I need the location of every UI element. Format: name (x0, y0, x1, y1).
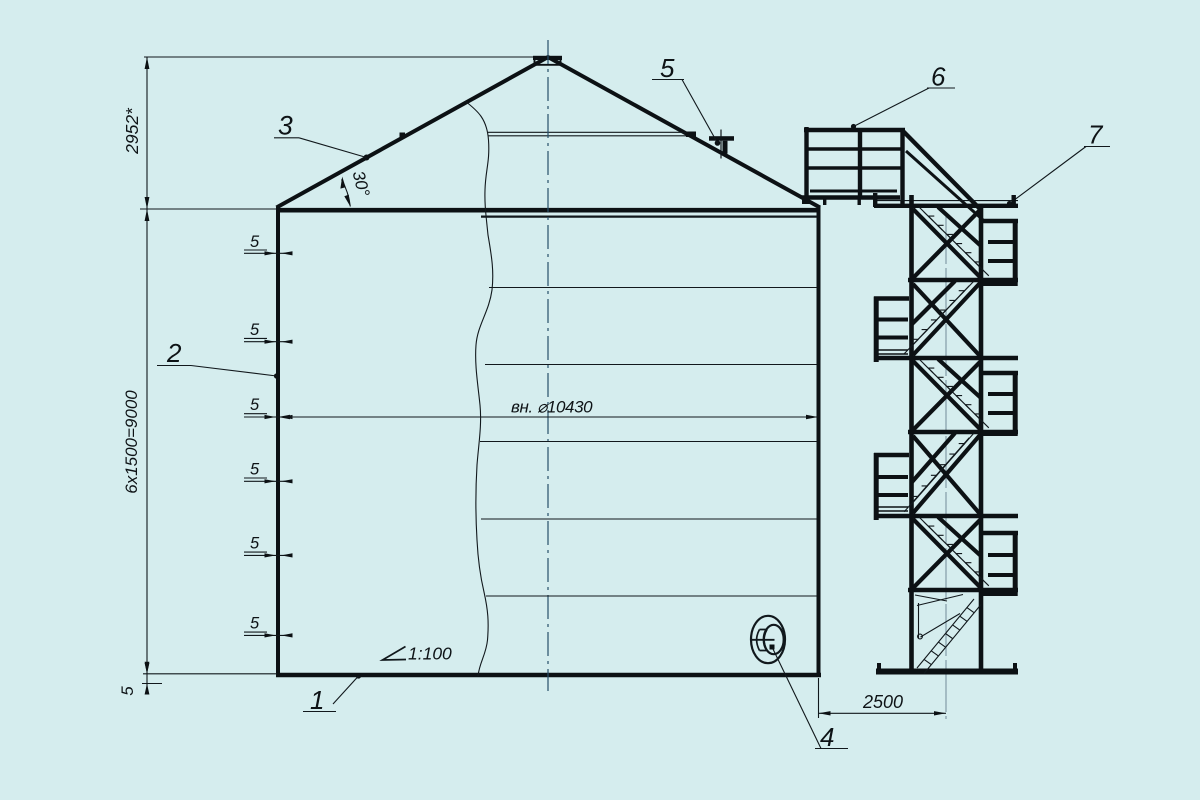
svg-text:2952*: 2952* (122, 107, 142, 155)
svg-text:5: 5 (250, 615, 260, 633)
svg-text:1:100: 1:100 (408, 644, 452, 664)
svg-text:2500: 2500 (862, 692, 903, 712)
svg-text:4: 4 (820, 722, 834, 752)
svg-text:5: 5 (250, 321, 260, 339)
svg-text:6: 6 (931, 62, 946, 92)
svg-text:5: 5 (118, 686, 137, 696)
svg-text:2: 2 (166, 338, 182, 368)
svg-text:вн. ⌀10430: вн. ⌀10430 (511, 398, 593, 417)
svg-text:5: 5 (250, 461, 260, 479)
svg-text:5: 5 (250, 535, 260, 553)
svg-text:7: 7 (1088, 120, 1104, 150)
svg-text:6x1500=9000: 6x1500=9000 (122, 390, 141, 494)
svg-text:5: 5 (660, 53, 675, 83)
svg-text:5: 5 (250, 233, 260, 251)
svg-text:5: 5 (250, 396, 260, 414)
svg-text:1: 1 (310, 685, 324, 715)
svg-text:3: 3 (278, 111, 293, 141)
